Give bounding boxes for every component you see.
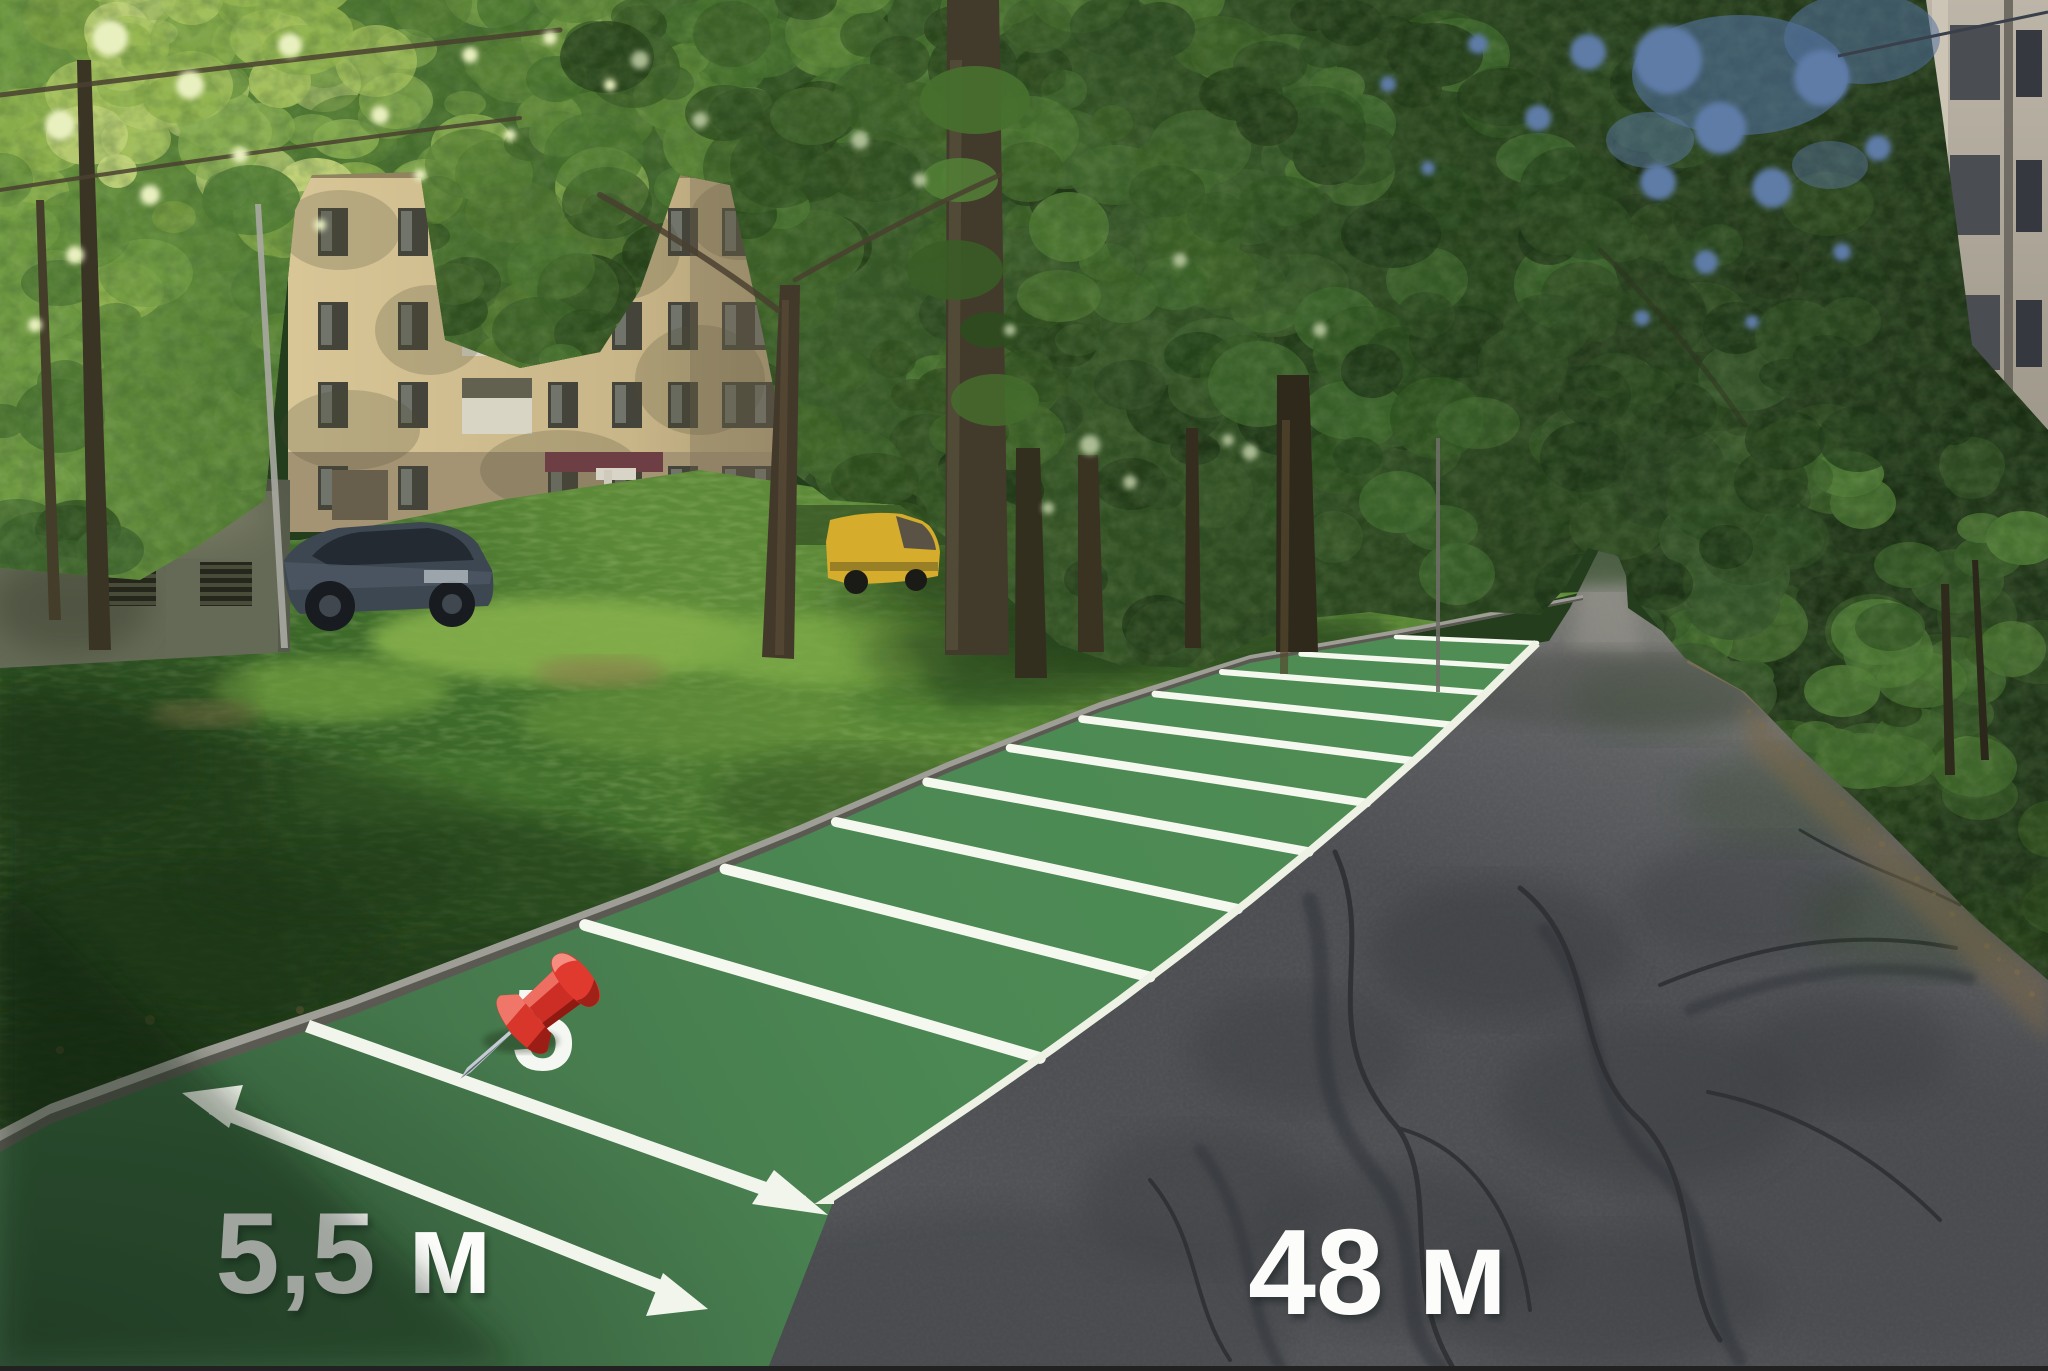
svg-text:48 м: 48 м bbox=[1248, 1204, 1508, 1340]
